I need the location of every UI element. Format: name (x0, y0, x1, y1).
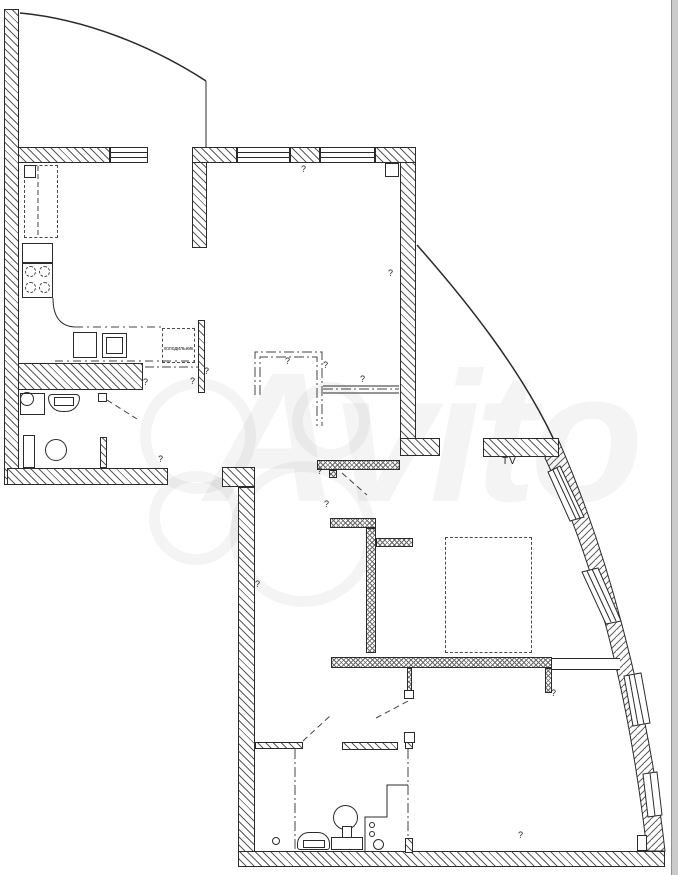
question-mark-label: ? (388, 269, 393, 278)
wall-doorframe-left (407, 668, 412, 691)
wall-bottom (238, 851, 665, 867)
wall-left-outer (4, 9, 19, 485)
bath1-washer (20, 392, 34, 406)
doorframe-cap (404, 732, 415, 743)
floor-plan: Avito (0, 0, 678, 875)
lintel-bedroom (552, 658, 620, 670)
shower-knob (369, 831, 375, 837)
fridge-label: холодильник (161, 347, 196, 352)
window-top-2 (237, 147, 290, 163)
shower-knob (369, 822, 375, 828)
wall-bath2-left (255, 742, 303, 749)
kitchen-counter-curve (53, 298, 75, 327)
wall-right-foot (400, 438, 440, 456)
wall-mid-corner-v (366, 528, 376, 653)
bath2-bidet-inner (303, 840, 325, 848)
wall-mid-corner-h (330, 518, 376, 528)
bath2-drain (272, 837, 280, 845)
wall-lower-left-cap (222, 467, 255, 487)
question-mark-label: ? (204, 367, 209, 376)
kitchen-hob-inner (106, 337, 123, 354)
question-mark-label: ? (324, 500, 329, 509)
wall-top-a (18, 147, 110, 163)
stove-burner (25, 266, 36, 277)
question-mark-label: ? (190, 377, 195, 386)
bath1-toilet-tank (23, 435, 35, 468)
column-notch (385, 163, 399, 177)
wall-top-b (192, 147, 237, 163)
question-mark-label: ? (317, 467, 322, 476)
wall-tv (483, 438, 559, 457)
wall-lower-left (238, 487, 255, 853)
question-mark-label: ? (255, 580, 260, 589)
balcony-arc-right (417, 245, 554, 440)
wall-bath1-bottom (7, 468, 168, 485)
stove-burner (39, 266, 50, 277)
wall-top-c (290, 147, 320, 163)
shower-steps (365, 785, 408, 851)
bath1-basin-inner (54, 397, 74, 406)
wall-right-living (400, 162, 416, 439)
doorframe-foot (404, 690, 414, 699)
question-mark-label: ? (518, 831, 523, 840)
wall-bath2-right-bottom (405, 838, 413, 853)
wall-bedroom-bottom (331, 657, 552, 668)
stove-burner (25, 282, 36, 293)
scrollbar[interactable] (671, 0, 678, 875)
question-mark-label: ? (323, 361, 328, 370)
axis-lines (255, 352, 408, 851)
wall-bath1-pier (100, 437, 107, 468)
bath1-wall-fixture (98, 393, 107, 402)
wall-wc-notch (329, 470, 337, 478)
question-mark-label: ? (360, 375, 365, 384)
question-mark-label: ? (285, 357, 290, 366)
wall-bath1-top (18, 363, 143, 390)
wall-kitchen-pier (198, 320, 205, 393)
door-swings (107, 400, 410, 741)
wall-bath2-mid (342, 742, 398, 750)
balcony-arc-top-left (20, 13, 206, 81)
kitchen-counter-box (22, 243, 53, 263)
question-mark-label: ? (551, 689, 556, 698)
bed (445, 537, 532, 653)
question-mark-label: ? (143, 378, 148, 387)
bath2-toilet-base (331, 837, 363, 850)
window-top-3 (320, 147, 375, 163)
shower-drain (373, 839, 384, 850)
bath1-toilet-bowl (45, 439, 67, 461)
question-mark-label: ? (158, 455, 163, 464)
wall-wc-top (317, 460, 400, 470)
corner-step (637, 835, 647, 851)
wall-pier-top (192, 162, 207, 248)
kitchen-cabinet-corner (24, 165, 36, 178)
window-top-1 (110, 147, 148, 163)
wall-top-corner (375, 147, 416, 163)
stove-burner (39, 282, 50, 293)
wall-mid-stub (376, 538, 413, 547)
question-mark-label: ? (301, 165, 306, 174)
kitchen-sink (73, 332, 97, 358)
tv-label: TV (502, 457, 517, 467)
